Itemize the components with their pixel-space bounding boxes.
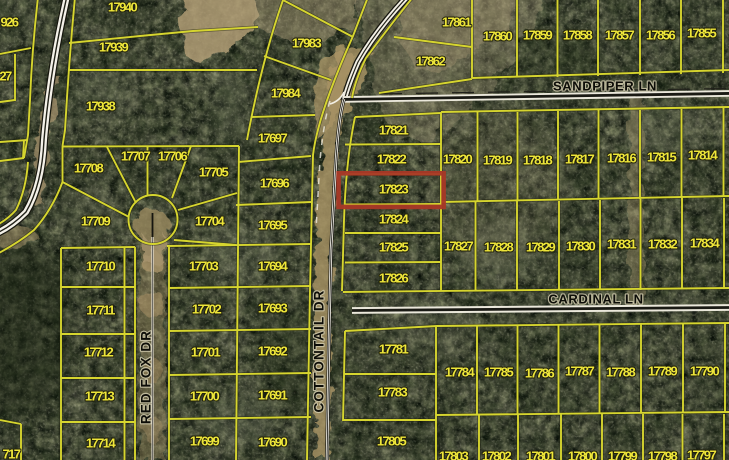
svg-text:17832: 17832 bbox=[648, 237, 678, 252]
svg-text:17820: 17820 bbox=[443, 152, 473, 167]
svg-text:27: 27 bbox=[0, 69, 12, 84]
svg-text:17859: 17859 bbox=[523, 28, 553, 43]
svg-text:17695: 17695 bbox=[258, 218, 288, 233]
svg-text:17784: 17784 bbox=[445, 365, 476, 380]
svg-text:17983: 17983 bbox=[292, 36, 322, 51]
svg-text:SANDPIPER LN: SANDPIPER LN bbox=[553, 79, 657, 94]
svg-text:CARDINAL LN: CARDINAL LN bbox=[548, 292, 643, 307]
svg-text:RED FOX DR: RED FOX DR bbox=[139, 330, 154, 424]
svg-text:17713: 17713 bbox=[85, 389, 115, 404]
svg-text:17805: 17805 bbox=[377, 434, 407, 449]
svg-text:17825: 17825 bbox=[379, 240, 409, 255]
svg-text:17823: 17823 bbox=[379, 182, 409, 197]
svg-text:17789: 17789 bbox=[648, 364, 678, 379]
svg-text:17714: 17714 bbox=[86, 436, 117, 451]
svg-text:17790: 17790 bbox=[690, 364, 720, 379]
svg-text:17786: 17786 bbox=[525, 366, 555, 381]
svg-text:17828: 17828 bbox=[484, 240, 514, 255]
svg-text:17816: 17816 bbox=[607, 151, 637, 166]
svg-text:17705: 17705 bbox=[199, 165, 229, 180]
svg-text:17817: 17817 bbox=[565, 152, 595, 167]
svg-text:17781: 17781 bbox=[379, 342, 409, 357]
svg-text:17938: 17938 bbox=[86, 99, 116, 114]
svg-text:17703: 17703 bbox=[189, 259, 219, 274]
svg-text:17856: 17856 bbox=[646, 28, 676, 43]
svg-text:17694: 17694 bbox=[258, 259, 289, 274]
svg-text:17712: 17712 bbox=[84, 345, 114, 360]
svg-text:17939: 17939 bbox=[99, 40, 129, 55]
svg-text:17697: 17697 bbox=[258, 131, 288, 146]
svg-text:17707: 17707 bbox=[121, 149, 151, 164]
svg-text:17821: 17821 bbox=[379, 123, 409, 138]
svg-text:17787: 17787 bbox=[565, 364, 595, 379]
svg-text:17701: 17701 bbox=[191, 345, 221, 360]
svg-text:17788: 17788 bbox=[606, 365, 636, 380]
svg-text:17691: 17691 bbox=[258, 388, 288, 403]
svg-text:17814: 17814 bbox=[688, 148, 719, 163]
svg-text:17709: 17709 bbox=[81, 214, 111, 229]
svg-text:17829: 17829 bbox=[526, 240, 556, 255]
svg-text:17708: 17708 bbox=[74, 161, 104, 176]
svg-text:17692: 17692 bbox=[258, 344, 288, 359]
svg-text:17798: 17798 bbox=[648, 449, 678, 460]
svg-text:17861: 17861 bbox=[442, 15, 472, 30]
svg-text:717: 717 bbox=[3, 447, 21, 460]
svg-text:17831: 17831 bbox=[607, 237, 637, 252]
svg-text:17799: 17799 bbox=[608, 449, 638, 460]
svg-text:17710: 17710 bbox=[86, 259, 116, 274]
svg-text:17984: 17984 bbox=[271, 86, 302, 101]
svg-text:17822: 17822 bbox=[377, 152, 407, 167]
svg-text:17826: 17826 bbox=[379, 271, 409, 286]
svg-text:17696: 17696 bbox=[260, 176, 290, 191]
svg-text:17783: 17783 bbox=[378, 385, 408, 400]
svg-text:17800: 17800 bbox=[568, 449, 598, 460]
svg-text:17860: 17860 bbox=[483, 29, 513, 44]
svg-text:17704: 17704 bbox=[195, 214, 226, 229]
svg-text:17858: 17858 bbox=[563, 28, 593, 43]
svg-text:17802: 17802 bbox=[482, 449, 512, 460]
svg-text:17699: 17699 bbox=[190, 434, 220, 449]
svg-text:17803: 17803 bbox=[439, 449, 469, 460]
svg-text:17801: 17801 bbox=[526, 449, 556, 460]
svg-text:17785: 17785 bbox=[484, 365, 514, 380]
svg-text:17862: 17862 bbox=[416, 54, 446, 69]
svg-text:17690: 17690 bbox=[258, 435, 288, 450]
svg-text:17700: 17700 bbox=[190, 389, 220, 404]
svg-text:17693: 17693 bbox=[258, 301, 288, 316]
svg-text:17819: 17819 bbox=[483, 153, 513, 168]
svg-text:17706: 17706 bbox=[158, 149, 188, 164]
svg-text:COTTONTAIL DR: COTTONTAIL DR bbox=[312, 289, 327, 412]
svg-text:17855: 17855 bbox=[687, 26, 717, 41]
svg-text:17827: 17827 bbox=[444, 239, 474, 254]
svg-text:17834: 17834 bbox=[690, 236, 721, 251]
svg-text:17830: 17830 bbox=[566, 239, 596, 254]
svg-text:17818: 17818 bbox=[523, 153, 553, 168]
svg-text:17940: 17940 bbox=[108, 0, 138, 15]
svg-text:17857: 17857 bbox=[605, 28, 635, 43]
svg-text:17711: 17711 bbox=[86, 303, 115, 318]
svg-text:17702: 17702 bbox=[192, 302, 222, 317]
svg-text:17824: 17824 bbox=[379, 212, 410, 227]
svg-text:926: 926 bbox=[1, 15, 19, 30]
svg-text:17815: 17815 bbox=[647, 150, 677, 165]
svg-text:17797: 17797 bbox=[687, 448, 717, 460]
